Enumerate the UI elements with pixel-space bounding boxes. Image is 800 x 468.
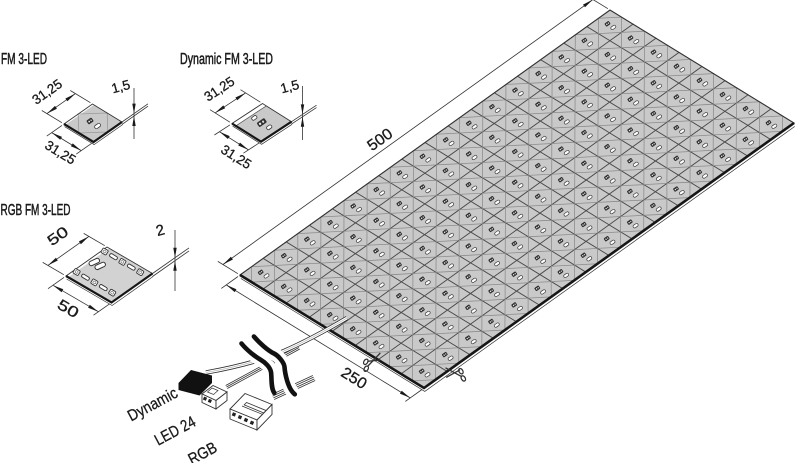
svg-text:Dynamic FM 3-LED: Dynamic FM 3-LED: [180, 51, 273, 68]
svg-text:RGB FM 3-LED: RGB FM 3-LED: [1, 202, 71, 219]
svg-text:FM 3-LED: FM 3-LED: [1, 51, 47, 68]
